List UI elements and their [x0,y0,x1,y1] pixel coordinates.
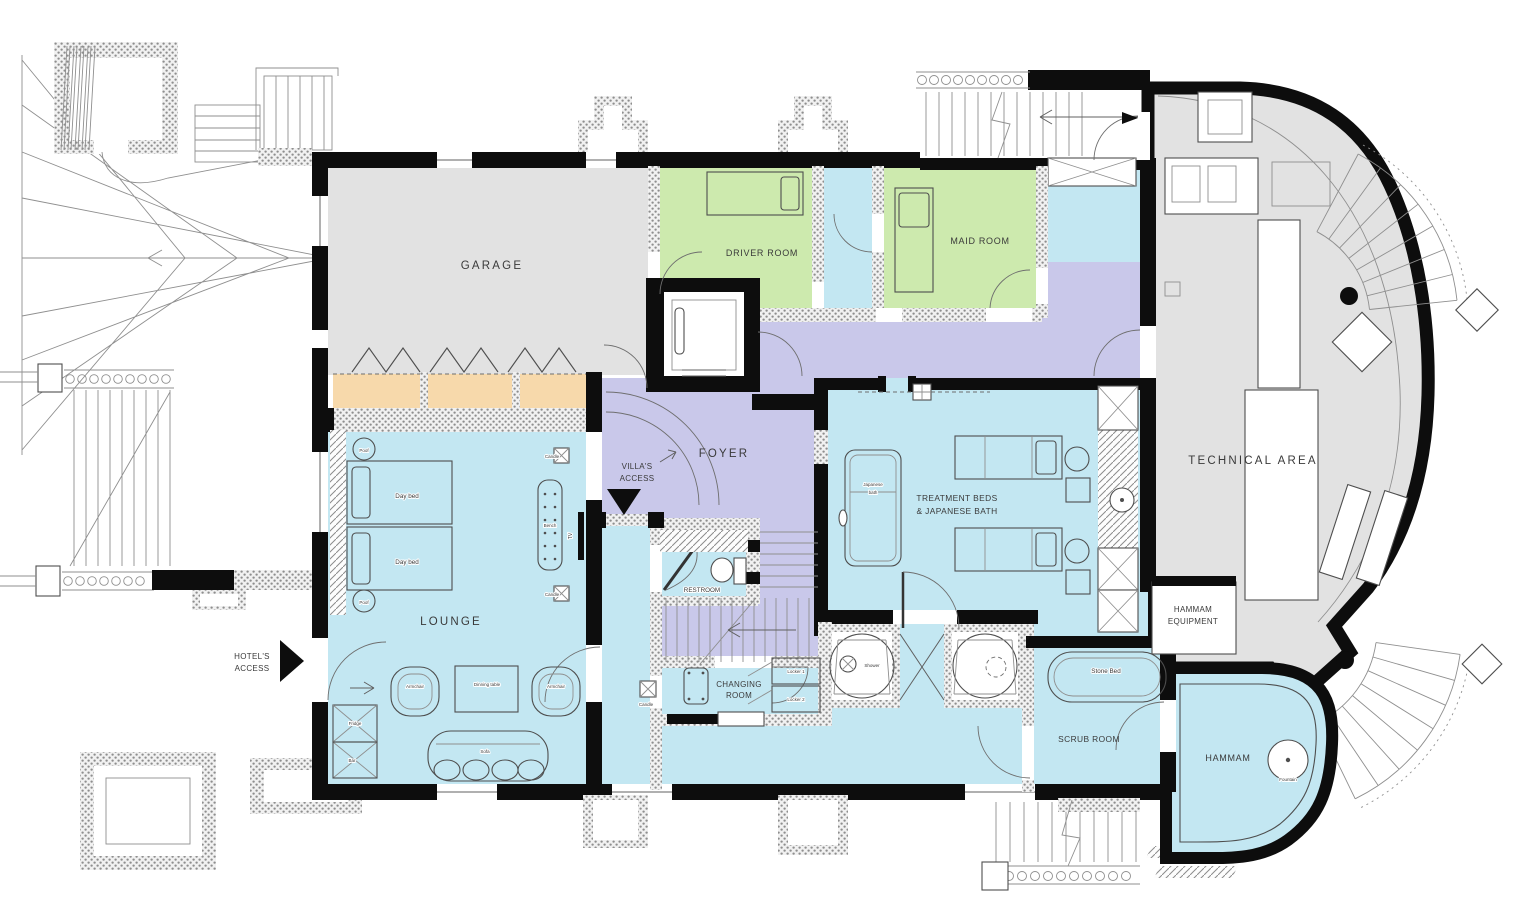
poof-top-label: Poof [359,448,369,453]
sofa-label: Sofa [480,749,490,754]
locker-2-label: Locker 2 [787,697,805,702]
foyer-label: FOYER [699,448,750,460]
restroom-label: RESTROOM [684,587,720,594]
hammam-equipment-label-2: EQUIPMENT [1168,617,1218,626]
entry-arrow-icon [1122,112,1138,124]
hammam-label: HAMMAM [1205,753,1250,763]
hotel-access-arrow-icon [280,640,304,682]
stair-floor [756,520,820,604]
hammam-room: Fountain HAMMAM [1166,668,1332,858]
storage-bay-2 [427,374,512,408]
villa-access-label-1: VILLA'S [622,462,653,471]
candle-label: Candle [639,702,654,707]
candle-label: Candle [545,592,560,597]
changing-room-label-2: ROOM [726,691,752,700]
garage: GARAGE [461,260,523,272]
stone-bed-label: Stone Bed [1091,668,1121,675]
hotel-access-label-2: ACCESS [235,664,270,673]
maid-room-label: MAID ROOM [950,236,1009,246]
hotel-access-label-1: HOTEL'S [234,652,270,661]
hammam-equipment-label-1: HAMMAM [1174,605,1212,614]
candle-label: Candle [545,454,560,459]
driver-room-label: DRIVER ROOM [726,248,798,258]
tv [578,512,584,560]
armchair-2-label: Armchair [547,684,566,689]
store-room-a-floor [818,160,878,320]
tv-label: TV [568,532,574,539]
scrub-room-label: SCRUB ROOM [1058,734,1120,744]
fridge-label: Fridge [349,721,362,726]
day-bed-2-label: Day bed [395,559,419,566]
hotel-access: HOTEL'S ACCESS [234,640,304,682]
villa-access-label-2: ACCESS [620,474,655,483]
treatment-label-1: TREATMENT BEDS [916,493,997,503]
armchair-1-label: Armchair [406,684,425,689]
poof-bottom-label: Poof [359,600,369,605]
lounge-label: LOUNGE [420,616,482,628]
treatment-label-2: & JAPANESE BATH [916,506,997,516]
technical-area-label: TECHNICAL AREA [1188,455,1317,467]
treatment-wet-wall [1098,386,1138,632]
dinning-table-label: Dinning table [474,682,501,687]
floor-plan: TECHNICAL AREA Fountain HAMMAM [0,0,1537,904]
scrub-room-floor [1030,640,1170,790]
day-bed-1-label: Day bed [395,493,419,500]
fountain-label: Fountain [1279,777,1297,782]
hammam-equipment-room: HAMMAM EQUIPMENT [1152,576,1236,654]
japanese-bath-label-1: Japanese [863,482,883,487]
bar-label: Bar [348,758,356,763]
exterior-stair-left [0,364,174,596]
changing-room-label-1: CHANGING [716,680,762,689]
storage-bay-3 [519,374,588,408]
shower-label: Shower [864,663,880,668]
floor-plan-page: TECHNICAL AREA Fountain HAMMAM [0,0,1537,904]
exterior-stair-bottom [982,798,1140,890]
toilet [711,558,733,582]
exterior-left-siteworks [0,42,362,870]
japanese-bath-label-2: bath [869,490,878,495]
locker-1-label: Locker 1 [787,669,805,674]
elevator [646,278,760,392]
garage-label: GARAGE [461,260,523,272]
storage-bay-1 [333,374,420,408]
lounge-bench-label: Bench [544,523,557,528]
